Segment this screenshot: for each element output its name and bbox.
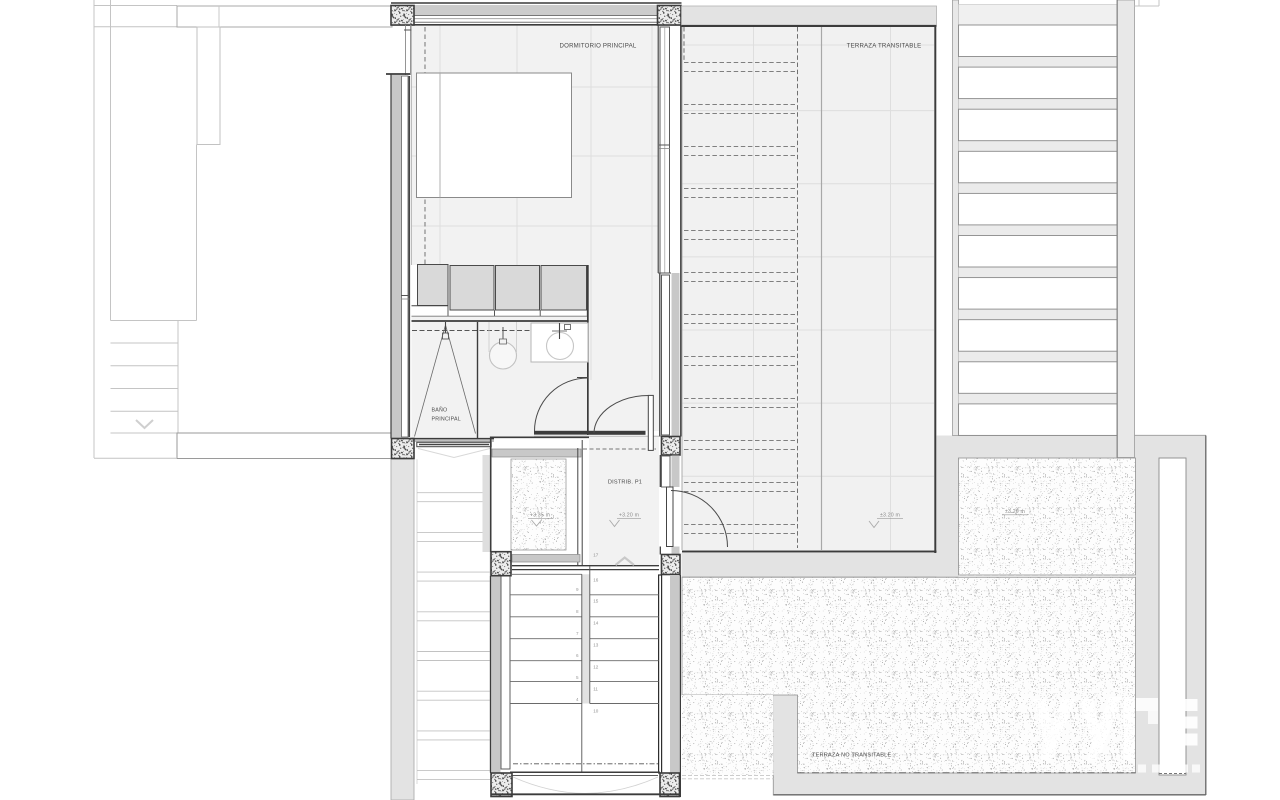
svg-text:13: 13 xyxy=(593,643,599,648)
svg-text:7: 7 xyxy=(576,631,579,636)
svg-text:PRINCIPAL: PRINCIPAL xyxy=(432,417,461,423)
svg-text:TERRAZA TRANSITABLE: TERRAZA TRANSITABLE xyxy=(847,43,922,50)
svg-text:17: 17 xyxy=(593,553,599,558)
svg-text:6: 6 xyxy=(576,653,579,658)
svg-text:12: 12 xyxy=(593,665,599,670)
svg-text:±3.20 m: ±3.20 m xyxy=(1005,509,1025,515)
svg-text:5: 5 xyxy=(576,675,579,680)
svg-text:±3.20 m: ±3.20 m xyxy=(880,513,900,519)
svg-text:4: 4 xyxy=(576,697,579,702)
svg-text:DORMITORIO PRINCIPAL: DORMITORIO PRINCIPAL xyxy=(560,43,637,50)
svg-text:+3.20 m: +3.20 m xyxy=(619,513,639,519)
svg-text:15: 15 xyxy=(593,599,599,604)
svg-text:+3.35 m: +3.35 m xyxy=(530,513,550,519)
svg-text:10: 10 xyxy=(593,709,599,714)
svg-text:14: 14 xyxy=(593,621,599,626)
svg-text:TERRAZA NO TRANSITABLE: TERRAZA NO TRANSITABLE xyxy=(812,753,891,759)
svg-text:11: 11 xyxy=(593,687,598,692)
svg-text:BAÑO: BAÑO xyxy=(432,407,448,414)
svg-text:DISTRIB. P1: DISTRIB. P1 xyxy=(608,480,642,486)
svg-text:16: 16 xyxy=(593,578,599,583)
svg-text:8: 8 xyxy=(576,609,579,614)
svg-text:9: 9 xyxy=(576,587,579,592)
